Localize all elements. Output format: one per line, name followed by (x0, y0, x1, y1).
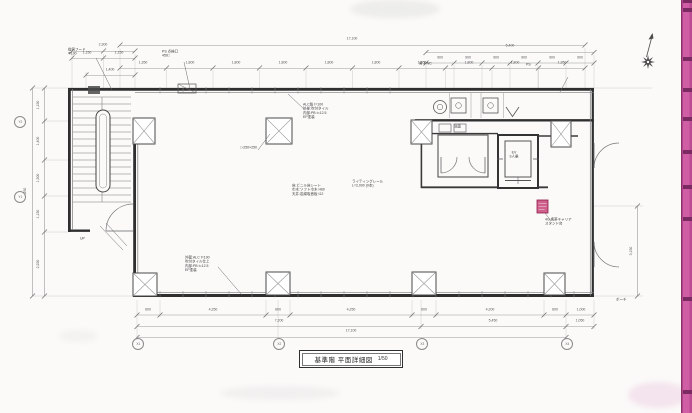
dim-label: 1,400 (37, 130, 44, 152)
annotation-wall-spec-bottom: 外壁:ALC t=100 吹付タイル仕上 内部:PB t=12.5 EP塗装 (185, 256, 245, 273)
dim-label: 600 (408, 308, 440, 312)
strip-band (683, 297, 692, 301)
grid-bubble-y1: Y1 (14, 191, 26, 203)
annotation-stair-up: UP (80, 237, 140, 241)
dim-label: 7,200 (263, 319, 295, 323)
drawing-scale: 1/50 (378, 356, 388, 362)
dim-label: 4,250 (335, 308, 367, 312)
annotation-column-size: □-250×250 (240, 146, 300, 150)
dim-label: 1,800 (220, 61, 252, 65)
annotation-ps: PS (526, 63, 586, 67)
scan-edge-strip (681, 0, 692, 413)
grid-bubble-x4: X4 (561, 338, 573, 350)
dim-label: 5,400 (494, 44, 526, 48)
annotation-vent: 換気フード Φ100 (68, 48, 128, 56)
scanned-floorplan-page: 17,100 2,300 1,150 1,150 1,400 1,350 1,8… (0, 0, 692, 413)
dim-label: 600 (262, 308, 294, 312)
strip-band (683, 88, 692, 92)
dim-label: 1,400 (94, 68, 126, 72)
wash-basin (439, 124, 451, 132)
dim-label: 17,100 (335, 329, 367, 333)
annotation-washroom: 洗面 (454, 125, 514, 129)
annotation-carrier-stand: 4G 携帯キャリア スタンド台 (545, 218, 605, 226)
strip-band (683, 185, 692, 189)
dim-label: 1,150 (37, 203, 44, 225)
dim-label: 900 (564, 56, 596, 60)
annotation-porch: ポーチ (616, 298, 676, 302)
annotation-wall-spec-top: ALC版 t=100 外部:吹付タイル 内部:PB t=12.5 EP塗装 (303, 103, 363, 120)
stair-entry-door (88, 86, 100, 94)
dim-label: 1,800 (360, 61, 392, 65)
dim-label: 1,800 (174, 61, 206, 65)
grid-bubble-x3: X3 (416, 338, 428, 350)
annotation-lighting: ライティングレール L=2,000 (9本) (352, 180, 412, 188)
dim-label: 2,300 (87, 43, 119, 47)
stair-handrail-island (96, 110, 110, 192)
dim-label: 4,200 (474, 308, 506, 312)
dim-label: 3,150 (630, 240, 637, 262)
dim-label: 4,250 (197, 308, 229, 312)
strip-band (683, 8, 692, 12)
annotation-room-finish: 床:ビニル床シート 巾木:ソフト巾木 H60 天井:岩綿吸音板 t12 (292, 184, 352, 197)
annotation-mens-wc: 男子WC (419, 62, 479, 66)
strip-band (683, 117, 692, 121)
dim-label: 1,150 (37, 94, 44, 116)
dim-label: 1,800 (267, 61, 299, 65)
elevator (497, 135, 539, 188)
dim-label: 2,250 (37, 253, 44, 275)
strip-band (683, 57, 692, 61)
grid-bubble-x1: X1 (132, 338, 144, 350)
strip-band (683, 217, 692, 221)
dim-label: 1,000 (565, 308, 597, 312)
annotation-ps-hatch: PS 点検口 450□ (162, 50, 222, 58)
dim-label: 1,800 (313, 61, 345, 65)
red-stamp (537, 200, 548, 213)
dim-label: 600 (132, 308, 164, 312)
grid-bubble-x2: X2 (273, 338, 285, 350)
drawing-title: 基準階 平面詳細図 (314, 354, 372, 364)
annotation-elevator: EV 9人乗 (504, 151, 524, 159)
strip-band (683, 150, 692, 154)
strip-band (683, 0, 692, 3)
grid-bubble-y2: Y2 (14, 116, 26, 128)
dim-label: 1,050 (564, 319, 596, 323)
dim-label: 17,100 (336, 37, 368, 41)
north-arrow-icon (641, 33, 655, 69)
dim-label: 1,350 (127, 61, 159, 65)
strip-band (683, 390, 692, 394)
urinal (506, 107, 519, 117)
drawing-title-block: 基準階 平面詳細図 1/50 (299, 350, 403, 368)
dim-label: 5,450 (477, 319, 509, 323)
dim-label: 1,300 (37, 167, 44, 189)
